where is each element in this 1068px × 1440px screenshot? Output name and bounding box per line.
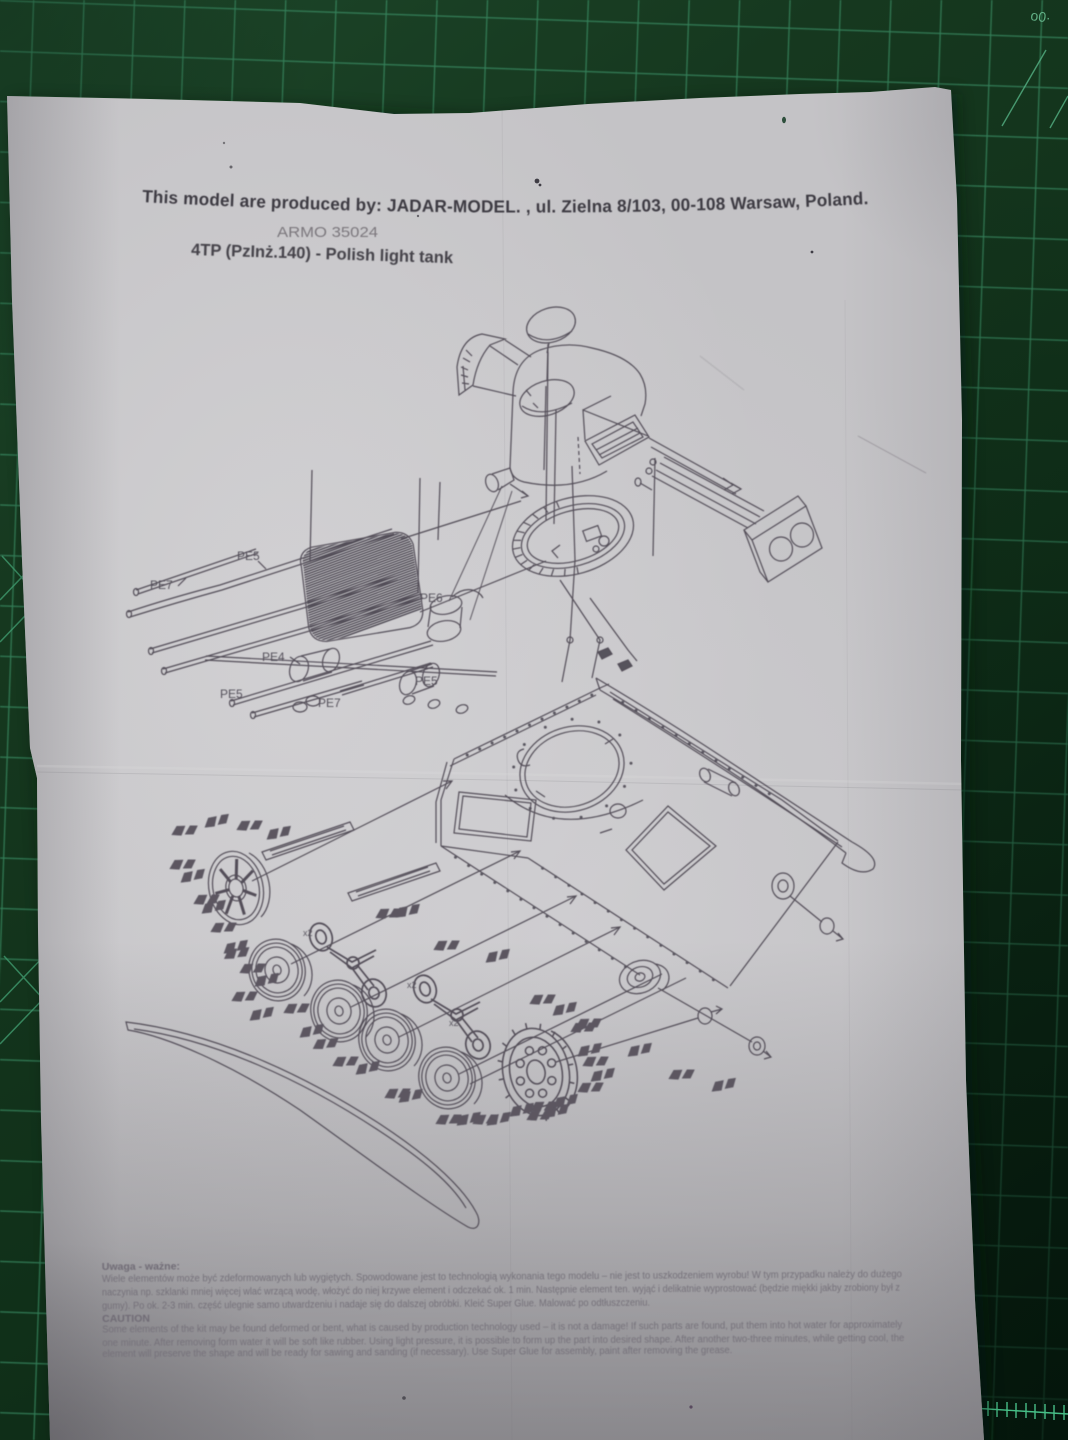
svg-text:x2: x2 xyxy=(303,928,313,938)
svg-text:x2: x2 xyxy=(407,980,417,990)
svg-text:Uwaga - ważne:: Uwaga - ważne: xyxy=(102,1261,180,1273)
svg-text:o0·: o0· xyxy=(1030,7,1052,26)
svg-text:PE4: PE4 xyxy=(262,650,285,664)
svg-text:CAUTION: CAUTION xyxy=(102,1313,150,1325)
svg-text:PE7: PE7 xyxy=(318,696,341,710)
svg-text:ARMO 35024: ARMO 35024 xyxy=(277,224,378,241)
svg-text:PE6: PE6 xyxy=(420,591,443,605)
svg-text:x2: x2 xyxy=(449,1018,459,1028)
svg-text:PE7: PE7 xyxy=(150,578,173,592)
